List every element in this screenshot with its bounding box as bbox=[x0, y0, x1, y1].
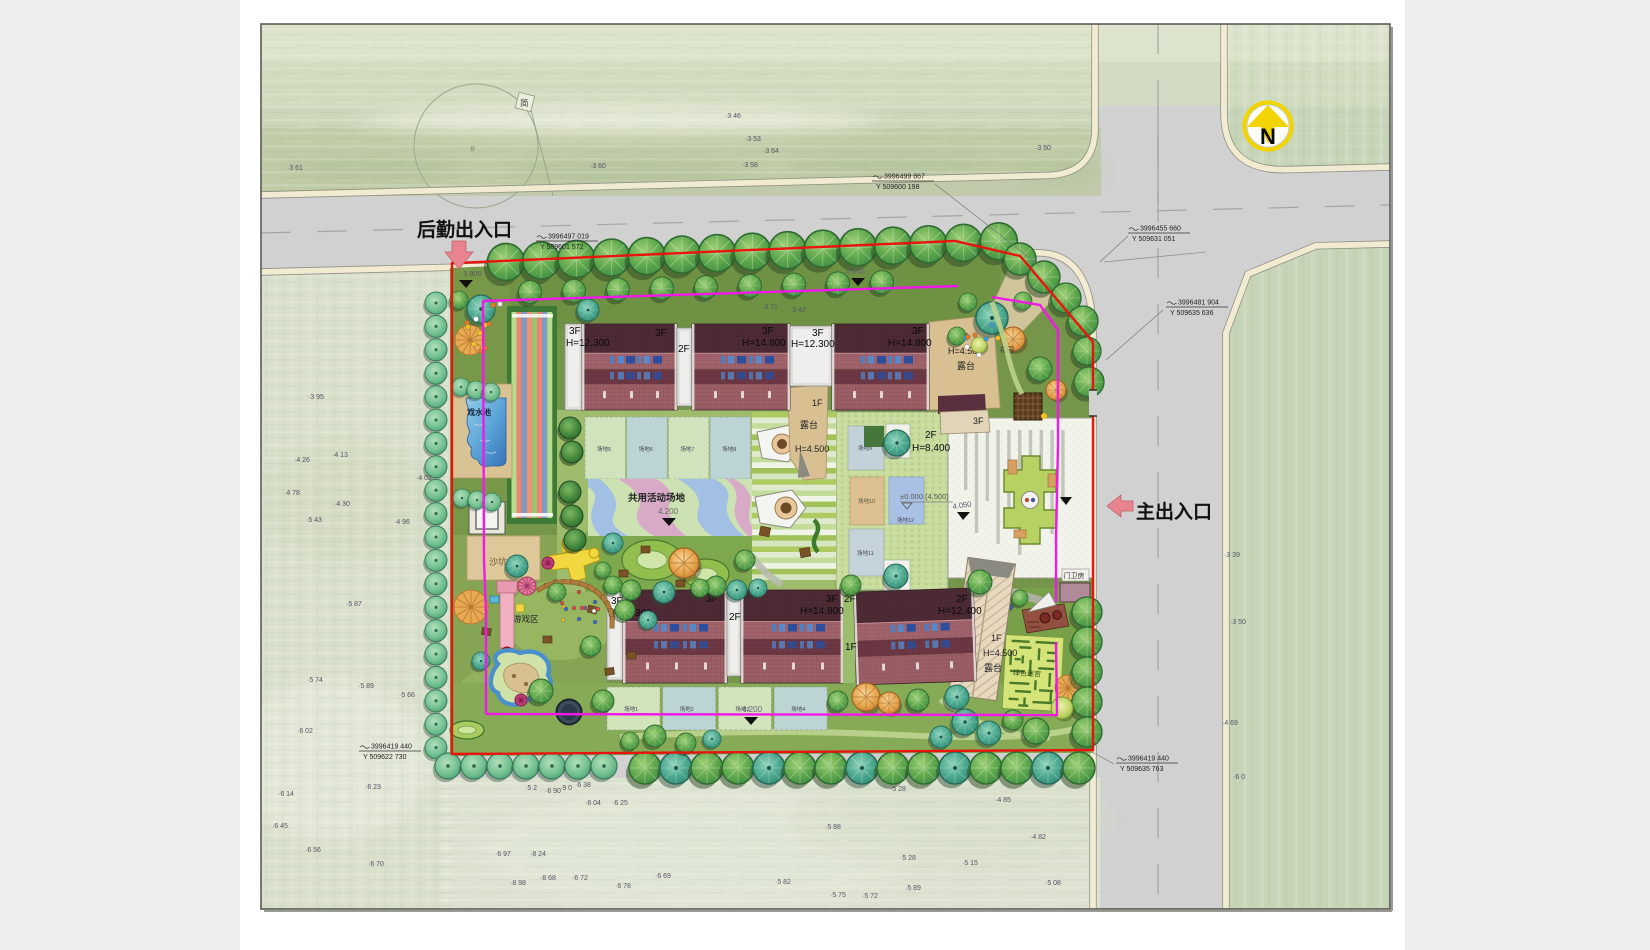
svg-text:·3 58: ·3 58 bbox=[742, 162, 758, 169]
svg-text:·4 69: ·4 69 bbox=[1222, 720, 1238, 727]
svg-text:±0.000 (4.500): ±0.000 (4.500) bbox=[900, 492, 949, 501]
svg-text:门卫房: 门卫房 bbox=[1064, 571, 1085, 580]
svg-text:·3 95: ·3 95 bbox=[308, 394, 324, 401]
svg-text:·3 50: ·3 50 bbox=[1035, 145, 1051, 152]
svg-text:主出入口: 主出入口 bbox=[1136, 500, 1212, 523]
svg-text:·3 39: ·3 39 bbox=[1224, 552, 1240, 559]
svg-text:H=12.300: H=12.300 bbox=[566, 338, 610, 349]
svg-text:H=8.400: H=8.400 bbox=[912, 443, 951, 454]
svg-text:3996499 867: 3996499 867 bbox=[884, 174, 925, 181]
svg-text:·4 96: ·4 96 bbox=[394, 519, 410, 526]
svg-text:·5 88: ·5 88 bbox=[825, 824, 841, 831]
svg-text:3F: 3F bbox=[762, 326, 774, 337]
svg-text:·6 78: ·6 78 bbox=[615, 883, 631, 890]
svg-text:·3 46: ·3 46 bbox=[725, 113, 741, 120]
svg-text:·8 24: ·8 24 bbox=[530, 851, 546, 858]
svg-text:4.200: 4.200 bbox=[658, 507, 679, 516]
svg-text:·5 28: ·5 28 bbox=[900, 855, 916, 862]
svg-text:H=14.800: H=14.800 bbox=[800, 606, 844, 617]
svg-text:H=4.500: H=4.500 bbox=[983, 648, 1017, 658]
svg-text:3F: 3F bbox=[569, 326, 581, 337]
svg-text:场地2: 场地2 bbox=[680, 705, 694, 713]
svg-text:·3 64: ·3 64 bbox=[763, 148, 779, 155]
svg-text:·6 72: ·6 72 bbox=[572, 875, 588, 882]
svg-text:·6 0: ·6 0 bbox=[1233, 774, 1245, 781]
svg-text:3996419 440: 3996419 440 bbox=[1128, 756, 1169, 763]
svg-text:·6 97: ·6 97 bbox=[495, 851, 511, 858]
svg-text:·6 38: ·6 38 bbox=[575, 782, 591, 789]
svg-text:H=4.500: H=4.500 bbox=[795, 444, 829, 454]
svg-text:场地5: 场地5 bbox=[597, 445, 611, 453]
svg-text:3F: 3F bbox=[973, 416, 984, 426]
svg-text:3F: 3F bbox=[655, 328, 667, 339]
svg-text:N: N bbox=[1260, 124, 1276, 149]
svg-text:·6 45: ·6 45 bbox=[272, 823, 288, 830]
svg-text:·4 13: ·4 13 bbox=[332, 452, 348, 459]
svg-text:H=12.400: H=12.400 bbox=[938, 606, 982, 617]
svg-text:3996419 440: 3996419 440 bbox=[371, 744, 412, 751]
svg-text:1F: 1F bbox=[991, 633, 1002, 643]
svg-text:·4 78: ·4 78 bbox=[284, 490, 300, 497]
svg-text:·6 90: ·6 90 bbox=[545, 788, 561, 795]
svg-text:4.200: 4.200 bbox=[742, 705, 763, 714]
svg-text:·9 0: ·9 0 bbox=[560, 785, 572, 792]
svg-text:3F: 3F bbox=[826, 594, 838, 605]
svg-text:1F: 1F bbox=[812, 398, 823, 408]
svg-text:场地4: 场地4 bbox=[791, 705, 805, 713]
svg-text:·8 98: ·8 98 bbox=[510, 880, 526, 887]
svg-text:3996455 660: 3996455 660 bbox=[1140, 226, 1181, 233]
svg-text:Y 509601 572: Y 509601 572 bbox=[540, 244, 584, 251]
svg-text:·4 02: ·4 02 bbox=[416, 475, 432, 482]
svg-text:3996481 904: 3996481 904 bbox=[1178, 300, 1219, 307]
svg-text:场地12: 场地12 bbox=[897, 516, 914, 524]
svg-text:·6 25: ·6 25 bbox=[612, 800, 628, 807]
svg-text:·3 60: ·3 60 bbox=[590, 163, 606, 170]
svg-text:露台: 露台 bbox=[984, 662, 1002, 673]
svg-text:·3 71: ·3 71 bbox=[762, 304, 778, 311]
svg-text:1F: 1F bbox=[845, 642, 857, 653]
svg-text:·5 15: ·5 15 bbox=[962, 860, 978, 867]
svg-text:·4 30: ·4 30 bbox=[334, 501, 350, 508]
svg-text:场地10: 场地10 bbox=[858, 497, 875, 505]
svg-text:·8 68: ·8 68 bbox=[540, 875, 556, 882]
svg-text:3.900: 3.900 bbox=[463, 269, 482, 278]
svg-text:·5 89: ·5 89 bbox=[358, 683, 374, 690]
svg-text:Y 509600 198: Y 509600 198 bbox=[876, 184, 920, 191]
svg-text:H=12.300: H=12.300 bbox=[791, 339, 835, 350]
svg-text:场地7: 场地7 bbox=[680, 445, 694, 453]
svg-text:·5 82: ·5 82 bbox=[775, 879, 791, 886]
svg-text:后勤出入口: 后勤出入口 bbox=[417, 218, 512, 241]
svg-text:简: 简 bbox=[520, 98, 529, 108]
svg-text:#: # bbox=[470, 144, 475, 154]
svg-text:游戏区: 游戏区 bbox=[513, 614, 539, 624]
svg-text:共用活动场地: 共用活动场地 bbox=[628, 492, 686, 504]
svg-text:场地1: 场地1 bbox=[624, 705, 638, 713]
svg-text:·4 82: ·4 82 bbox=[1030, 834, 1046, 841]
svg-text:·6 23: ·6 23 bbox=[365, 784, 381, 791]
svg-text:3996497 019: 3996497 019 bbox=[548, 234, 589, 241]
svg-text:·5 74: ·5 74 bbox=[307, 677, 323, 684]
svg-text:4.050: 4.050 bbox=[846, 267, 865, 276]
svg-text:场地8: 场地8 bbox=[722, 445, 736, 453]
svg-text:·3 50: ·3 50 bbox=[1230, 619, 1246, 626]
svg-text:·5 89: ·5 89 bbox=[905, 885, 921, 892]
svg-text:Y 509635 763: Y 509635 763 bbox=[1120, 766, 1164, 773]
svg-text:·6 56: ·6 56 bbox=[305, 847, 321, 854]
svg-text:·5 72: ·5 72 bbox=[862, 893, 878, 900]
svg-text:·5 43: ·5 43 bbox=[306, 517, 322, 524]
svg-text:·6 02: ·6 02 bbox=[297, 728, 313, 735]
svg-text:·3 53: ·3 53 bbox=[745, 136, 761, 143]
svg-text:·6 69: ·6 69 bbox=[655, 873, 671, 880]
svg-text:2F: 2F bbox=[729, 612, 741, 623]
svg-text:戏水池: 戏水池 bbox=[466, 407, 491, 417]
svg-text:·5 28: ·5 28 bbox=[890, 786, 906, 793]
svg-text:场地11: 场地11 bbox=[857, 549, 874, 557]
svg-text:·6 14: ·6 14 bbox=[278, 791, 294, 798]
svg-text:·6 04: ·6 04 bbox=[585, 800, 601, 807]
svg-text:3F: 3F bbox=[912, 326, 924, 337]
svg-text:·5 87: ·5 87 bbox=[346, 601, 362, 608]
svg-text:Y 509635 636: Y 509635 636 bbox=[1170, 310, 1214, 317]
svg-text:露台: 露台 bbox=[800, 419, 818, 430]
svg-text:Y 509631 051: Y 509631 051 bbox=[1132, 236, 1176, 243]
svg-text:露台: 露台 bbox=[957, 360, 975, 371]
svg-text:·5 2: ·5 2 bbox=[525, 785, 537, 792]
svg-text:H=14.800: H=14.800 bbox=[742, 338, 786, 349]
svg-text:·3 61: ·3 61 bbox=[287, 165, 303, 172]
svg-text:·4 85: ·4 85 bbox=[995, 797, 1011, 804]
svg-text:Y 509622 730: Y 509622 730 bbox=[363, 754, 407, 761]
svg-text:·6 70: ·6 70 bbox=[368, 861, 384, 868]
svg-text:2F: 2F bbox=[678, 344, 690, 355]
svg-text:·5 66: ·5 66 bbox=[399, 692, 415, 699]
svg-text:·5 75: ·5 75 bbox=[830, 892, 846, 899]
svg-text:·3 42: ·3 42 bbox=[790, 307, 806, 314]
svg-text:2F: 2F bbox=[925, 430, 937, 441]
svg-text:沙坑: 沙坑 bbox=[489, 556, 507, 567]
svg-text:2F: 2F bbox=[956, 594, 968, 605]
svg-text:3F: 3F bbox=[812, 328, 824, 339]
svg-text:H=14.800: H=14.800 bbox=[888, 338, 932, 349]
svg-text:场地6: 场地6 bbox=[639, 445, 653, 453]
svg-text:·5 08: ·5 08 bbox=[1045, 880, 1061, 887]
svg-text:·4 26: ·4 26 bbox=[294, 457, 310, 464]
